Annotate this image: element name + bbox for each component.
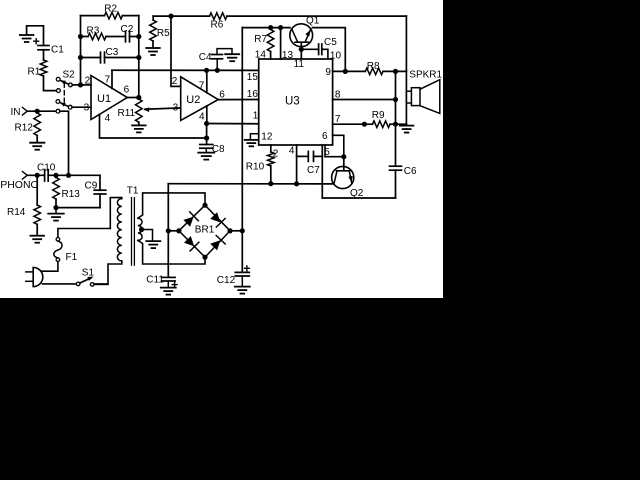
svg-text:9: 9 — [325, 67, 331, 78]
svg-text:C12: C12 — [217, 275, 236, 286]
svg-text:SPKR1: SPKR1 — [409, 69, 442, 80]
svg-text:11: 11 — [294, 59, 305, 70]
svg-text:BR1: BR1 — [195, 225, 215, 236]
svg-text:R2: R2 — [104, 3, 117, 14]
svg-text:7: 7 — [105, 75, 111, 86]
svg-text:R10: R10 — [246, 161, 265, 172]
svg-text:S2: S2 — [63, 70, 76, 81]
svg-text:C5: C5 — [324, 37, 337, 48]
svg-text:6: 6 — [219, 89, 225, 100]
svg-text:R11: R11 — [118, 108, 136, 119]
svg-text:C7: C7 — [307, 165, 320, 176]
svg-text:R1: R1 — [28, 67, 41, 78]
svg-text:3: 3 — [173, 102, 179, 113]
svg-text:C9: C9 — [85, 181, 98, 192]
svg-text:C11: C11 — [146, 274, 164, 285]
svg-text:15: 15 — [247, 72, 259, 83]
svg-text:C8: C8 — [212, 144, 225, 155]
svg-text:Q2: Q2 — [350, 188, 364, 199]
svg-text:R6: R6 — [211, 20, 224, 31]
svg-text:6: 6 — [124, 85, 130, 96]
svg-text:6: 6 — [322, 131, 328, 142]
svg-text:C4: C4 — [199, 52, 212, 63]
svg-text:R3: R3 — [87, 26, 100, 37]
svg-text:2: 2 — [172, 76, 178, 87]
svg-text:C1: C1 — [51, 45, 64, 56]
svg-text:4: 4 — [289, 145, 295, 156]
svg-text:U1: U1 — [97, 93, 111, 105]
svg-text:R12: R12 — [15, 123, 34, 134]
svg-text:F1: F1 — [66, 252, 78, 263]
svg-text:U2: U2 — [186, 94, 200, 106]
svg-text:1: 1 — [253, 111, 259, 122]
svg-text:Q1: Q1 — [306, 16, 320, 27]
svg-text:16: 16 — [247, 89, 259, 100]
svg-text:R9: R9 — [372, 110, 385, 121]
svg-text:14: 14 — [255, 49, 267, 60]
svg-text:12: 12 — [261, 132, 273, 143]
svg-text:4: 4 — [199, 111, 205, 122]
svg-text:7: 7 — [199, 80, 205, 91]
svg-text:U3: U3 — [285, 96, 300, 108]
svg-text:PHONO: PHONO — [0, 179, 39, 191]
svg-text:13: 13 — [282, 50, 294, 61]
svg-text:R7: R7 — [254, 34, 267, 45]
svg-text:3: 3 — [84, 103, 90, 114]
svg-text:R5: R5 — [157, 28, 170, 39]
svg-text:C10: C10 — [37, 162, 56, 173]
svg-text:4: 4 — [105, 113, 111, 124]
svg-text:C2: C2 — [121, 24, 134, 35]
svg-text:C3: C3 — [106, 47, 119, 58]
svg-text:R8: R8 — [367, 61, 380, 72]
svg-text:T1: T1 — [127, 186, 139, 197]
svg-text:R14: R14 — [7, 207, 26, 218]
svg-text:S1: S1 — [82, 267, 95, 278]
svg-text:10: 10 — [330, 51, 342, 62]
svg-text:C6: C6 — [404, 166, 417, 177]
svg-text:IN: IN — [11, 107, 21, 118]
svg-text:R13: R13 — [62, 189, 81, 200]
